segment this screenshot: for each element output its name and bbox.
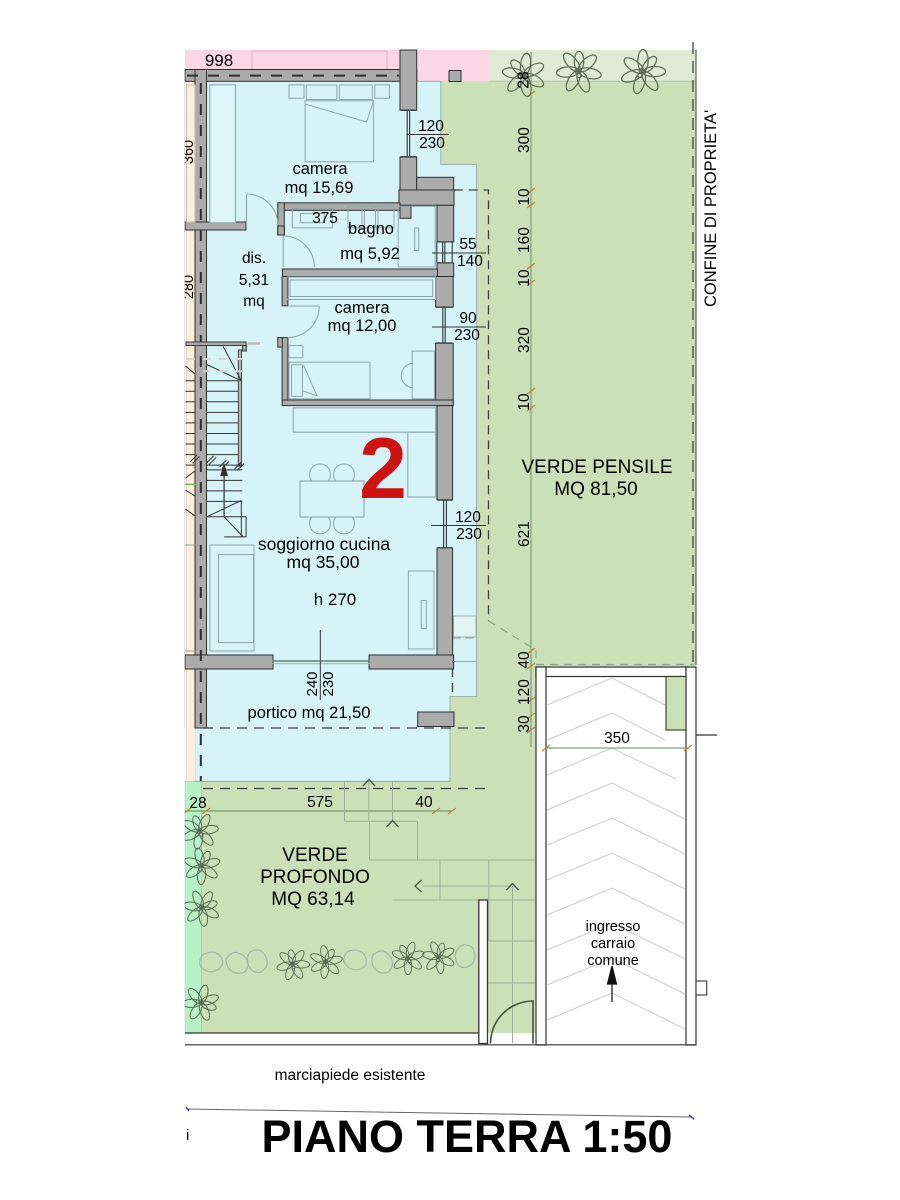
svg-text:55: 55 (459, 236, 476, 253)
svg-text:ingresso: ingresso (586, 919, 641, 935)
svg-text:120: 120 (455, 509, 481, 526)
svg-text:300: 300 (516, 127, 533, 153)
svg-text:10: 10 (516, 393, 533, 411)
svg-text:dis.: dis. (242, 250, 266, 267)
svg-text:PROFONDO: PROFONDO (260, 867, 370, 888)
svg-text:375: 375 (312, 210, 338, 227)
svg-text:240: 240 (304, 671, 321, 696)
svg-text:28: 28 (189, 795, 206, 812)
svg-text:h 270: h 270 (314, 590, 357, 609)
svg-text:comune: comune (587, 953, 639, 969)
svg-text:5,31: 5,31 (239, 272, 269, 289)
svg-text:120: 120 (516, 679, 533, 705)
svg-text:portico mq 21,50: portico mq 21,50 (248, 704, 371, 722)
svg-text:230: 230 (419, 135, 445, 152)
svg-text:90: 90 (459, 310, 477, 327)
svg-text:2: 2 (359, 421, 407, 517)
svg-text:230: 230 (456, 526, 482, 543)
svg-text:230: 230 (454, 327, 480, 344)
svg-text:28: 28 (516, 71, 533, 88)
svg-text:mq 5,92: mq 5,92 (340, 245, 400, 263)
svg-text:soggiorno cucina: soggiorno cucina (258, 534, 391, 554)
svg-text:carraio: carraio (591, 936, 635, 952)
svg-text:230: 230 (320, 671, 337, 696)
svg-text:320: 320 (516, 327, 533, 353)
svg-text:MQ 81,50: MQ 81,50 (554, 479, 637, 500)
svg-text:camera: camera (334, 299, 390, 317)
svg-text:120: 120 (418, 118, 444, 135)
svg-text:i: i (186, 1127, 189, 1144)
svg-text:160: 160 (516, 227, 533, 253)
svg-text:mq 15,69: mq 15,69 (285, 179, 354, 197)
svg-text:mq: mq (243, 293, 265, 310)
svg-text:bagno: bagno (348, 220, 394, 238)
svg-text:MQ 63,14: MQ 63,14 (271, 889, 355, 910)
svg-text:VERDE: VERDE (282, 845, 347, 866)
svg-text:mq 35,00: mq 35,00 (287, 552, 360, 572)
svg-text:350: 350 (604, 730, 630, 747)
svg-text:camera: camera (292, 160, 348, 178)
svg-text:621: 621 (516, 521, 533, 547)
svg-text:CONFINE DI PROPRIETA': CONFINE DI PROPRIETA' (702, 110, 720, 307)
svg-text:10: 10 (516, 269, 533, 287)
svg-text:140: 140 (457, 253, 483, 270)
svg-text:40: 40 (415, 794, 433, 811)
svg-text:575: 575 (307, 794, 333, 811)
svg-text:10: 10 (516, 188, 533, 206)
svg-text:PIANO TERRA 1:50: PIANO TERRA 1:50 (262, 1111, 673, 1162)
svg-text:40: 40 (516, 651, 533, 669)
svg-text:mq 12,00: mq 12,00 (328, 317, 397, 335)
svg-text:998: 998 (205, 51, 233, 70)
svg-text:VERDE PENSILE: VERDE PENSILE (522, 457, 673, 478)
svg-text:30: 30 (516, 715, 533, 733)
svg-text:marciapiede esistente: marciapiede esistente (275, 1067, 426, 1084)
